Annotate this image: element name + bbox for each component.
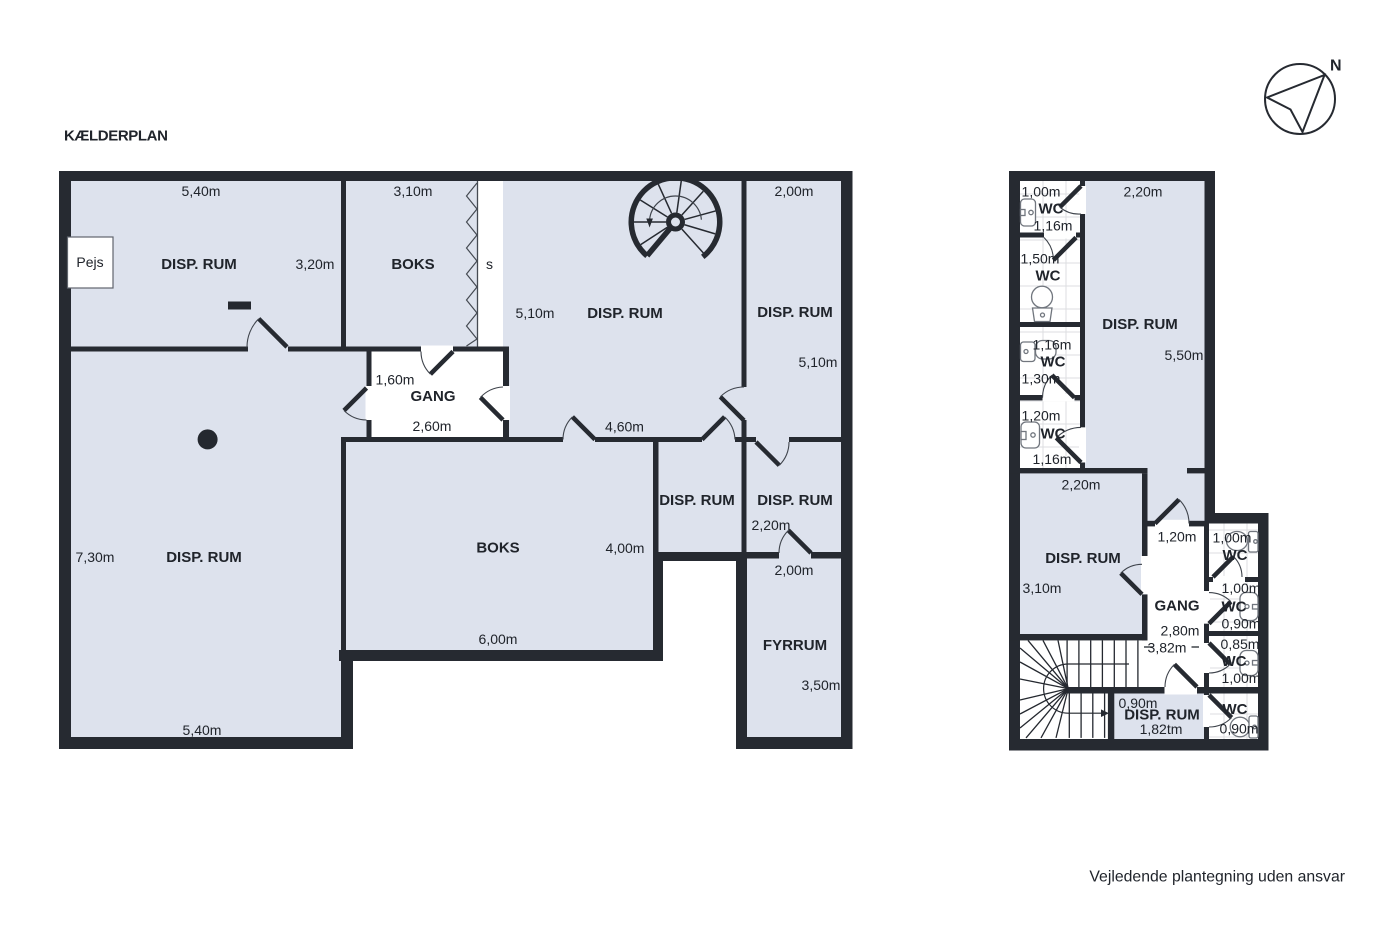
svg-text:1,60m: 1,60m <box>376 372 415 388</box>
svg-text:FYRRUM: FYRRUM <box>763 637 827 654</box>
svg-text:2,00m: 2,00m <box>775 562 814 578</box>
svg-text:WC: WC <box>1036 268 1061 285</box>
svg-text:7,30m: 7,30m <box>76 549 115 565</box>
svg-text:1,00m: 1,00m <box>1213 530 1252 546</box>
svg-text:DISP. RUM: DISP. RUM <box>587 305 663 322</box>
svg-text:WC: WC <box>1041 354 1066 371</box>
svg-text:2,20m: 2,20m <box>752 517 791 533</box>
svg-text:WC: WC <box>1223 547 1248 564</box>
svg-text:0,90m: 0,90m <box>1222 616 1261 632</box>
svg-text:5,50m: 5,50m <box>1165 347 1204 363</box>
svg-text:2,80m: 2,80m <box>1161 623 1200 639</box>
svg-text:1,82tm: 1,82tm <box>1140 721 1183 737</box>
svg-text:2,20m: 2,20m <box>1124 184 1163 200</box>
svg-text:DISP. RUM: DISP. RUM <box>166 549 242 566</box>
svg-text:0,90m: 0,90m <box>1220 721 1259 737</box>
svg-text:2,20m: 2,20m <box>1062 477 1101 493</box>
svg-text:DISP. RUM: DISP. RUM <box>757 492 833 509</box>
svg-text:3,50m: 3,50m <box>802 677 841 693</box>
svg-text:GANG: GANG <box>411 388 456 405</box>
svg-text:WC: WC <box>1222 653 1247 670</box>
svg-text:1,16m: 1,16m <box>1033 337 1072 353</box>
svg-text:GANG: GANG <box>1155 598 1200 615</box>
svg-text:DISP. RUM: DISP. RUM <box>1102 316 1178 333</box>
svg-text:5,40m: 5,40m <box>182 183 221 199</box>
svg-text:2,00m: 2,00m <box>775 183 814 199</box>
svg-text:Vejledende plantegning uden an: Vejledende plantegning uden ansvar <box>1089 869 1345 886</box>
svg-text:3,10m: 3,10m <box>1023 580 1062 596</box>
svg-text:3,82m: 3,82m <box>1148 640 1187 656</box>
svg-text:1,00m: 1,00m <box>1022 184 1061 200</box>
svg-text:1,30m: 1,30m <box>1022 371 1061 387</box>
svg-text:DISP. RUM: DISP. RUM <box>659 492 735 509</box>
svg-text:N: N <box>1330 58 1342 75</box>
svg-text:5,40m: 5,40m <box>183 722 222 738</box>
svg-text:WC: WC <box>1222 599 1247 616</box>
svg-text:3,20m: 3,20m <box>296 256 335 272</box>
svg-text:BOKS: BOKS <box>391 256 434 273</box>
svg-text:WC: WC <box>1223 701 1248 718</box>
svg-text:1,16m: 1,16m <box>1034 218 1073 234</box>
svg-text:WC: WC <box>1041 426 1066 443</box>
svg-text:s: s <box>486 256 493 272</box>
svg-text:1,16m: 1,16m <box>1033 451 1072 467</box>
svg-text:4,60m: 4,60m <box>605 419 644 435</box>
svg-text:DISP. RUM: DISP. RUM <box>161 256 237 273</box>
svg-text:Pejs: Pejs <box>76 254 103 270</box>
svg-text:4,00m: 4,00m <box>606 540 645 556</box>
svg-text:DISP. RUM: DISP. RUM <box>1045 550 1121 567</box>
svg-text:BOKS: BOKS <box>476 540 519 557</box>
svg-text:0,85m: 0,85m <box>1221 636 1260 652</box>
svg-text:KÆLDERPLAN: KÆLDERPLAN <box>64 128 168 145</box>
svg-text:1,50m: 1,50m <box>1021 251 1060 267</box>
svg-text:6,00m: 6,00m <box>479 631 518 647</box>
svg-text:5,10m: 5,10m <box>516 305 555 321</box>
svg-text:1,20m: 1,20m <box>1022 408 1061 424</box>
svg-text:DISP. RUM: DISP. RUM <box>757 304 833 321</box>
svg-text:2,60m: 2,60m <box>413 418 452 434</box>
svg-text:1,20m: 1,20m <box>1158 529 1197 545</box>
svg-text:1,00m: 1,00m <box>1222 670 1261 686</box>
svg-text:5,10m: 5,10m <box>799 354 838 370</box>
svg-text:1,00m: 1,00m <box>1222 580 1261 596</box>
svg-text:3,10m: 3,10m <box>394 183 433 199</box>
svg-text:WC: WC <box>1039 201 1064 218</box>
